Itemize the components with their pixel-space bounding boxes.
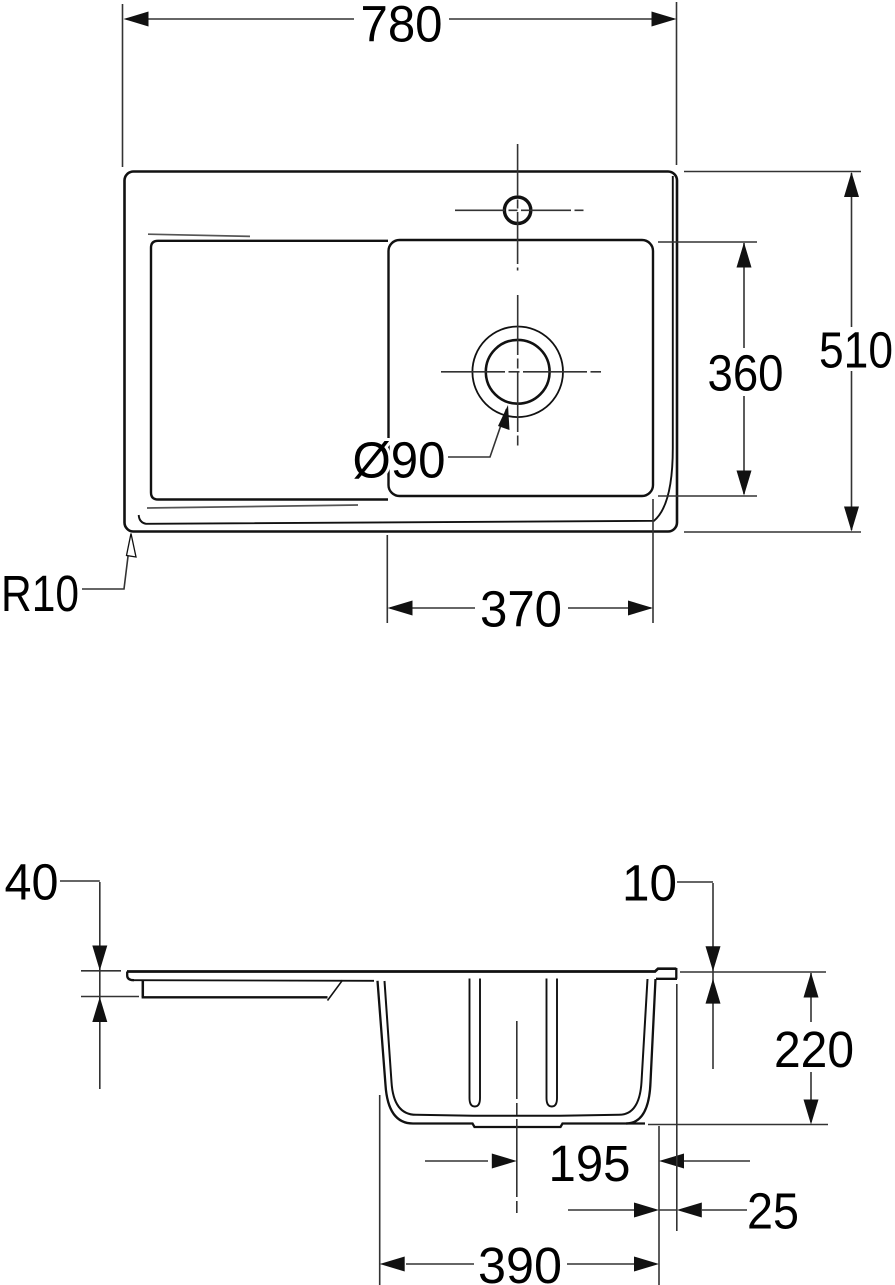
svg-text:25: 25 [747, 1182, 799, 1239]
svg-text:195: 195 [549, 1135, 631, 1192]
svg-text:780: 780 [361, 0, 443, 52]
svg-text:R10: R10 [1, 565, 79, 622]
svg-text:Ø90: Ø90 [353, 431, 446, 488]
svg-text:40: 40 [5, 853, 59, 910]
svg-text:360: 360 [708, 344, 784, 401]
svg-text:220: 220 [774, 1021, 854, 1078]
svg-text:390: 390 [478, 1237, 562, 1285]
svg-text:510: 510 [819, 321, 893, 378]
svg-text:370: 370 [480, 580, 562, 637]
svg-text:10: 10 [622, 854, 677, 911]
